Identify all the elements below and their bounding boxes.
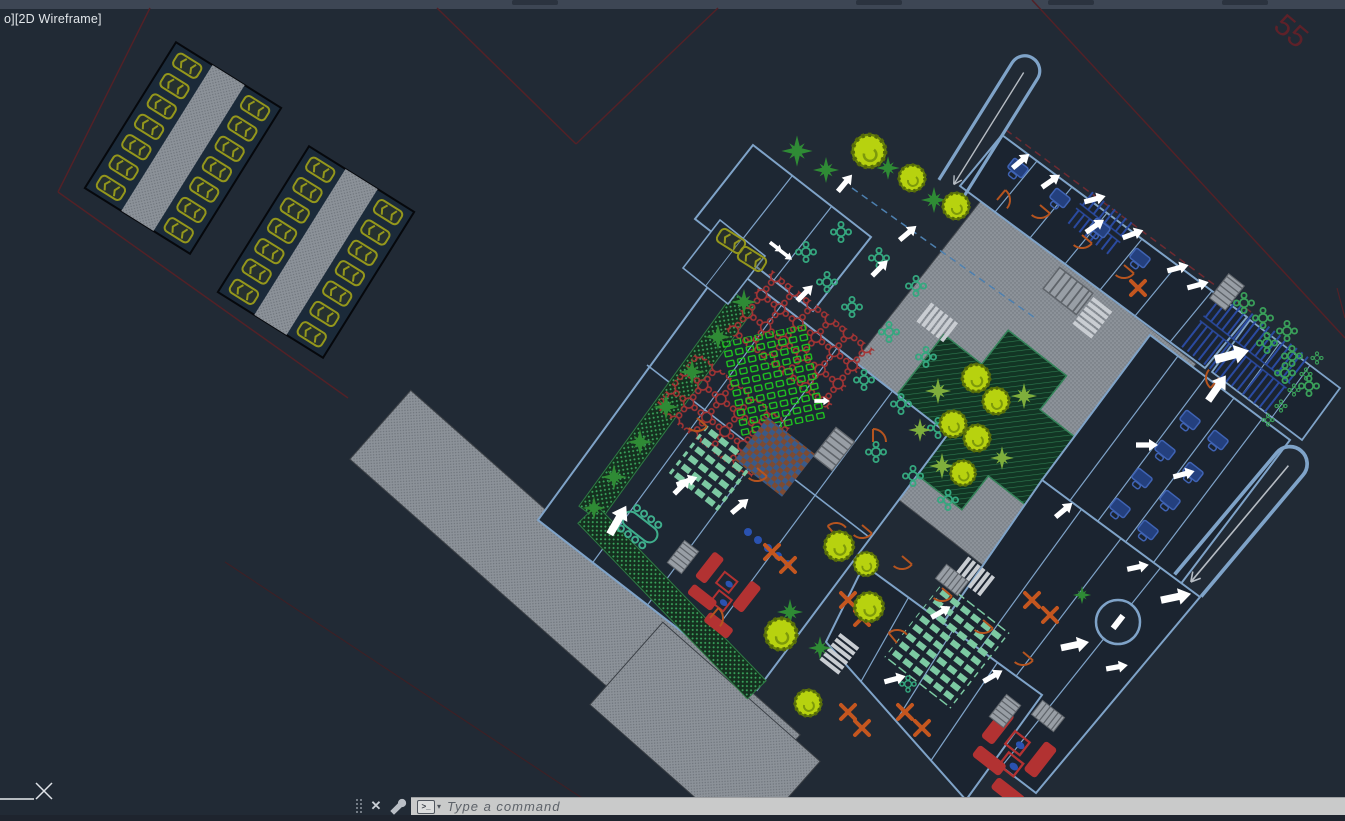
command-input[interactable]: Type a command [447, 799, 560, 814]
command-prompt-icon: >_ [417, 800, 435, 814]
viewport-label[interactable]: o][2D Wireframe] [4, 12, 102, 26]
command-line-bar[interactable]: >_ ▾ Type a command [411, 797, 1345, 816]
autocad-window: 55 o][2D Wireframe] ✕ >_ ▾ Type a comman… [0, 0, 1345, 821]
close-icon[interactable]: ✕ [367, 798, 385, 814]
dock-grip-handle[interactable] [355, 798, 363, 814]
plan-canvas[interactable]: 55 [0, 0, 1345, 821]
customize-wrench-icon[interactable] [388, 797, 408, 815]
status-strip [0, 815, 1345, 821]
chevron-down-icon[interactable]: ▾ [437, 802, 441, 811]
command-dock: ✕ >_ ▾ Type a command [355, 796, 1345, 816]
